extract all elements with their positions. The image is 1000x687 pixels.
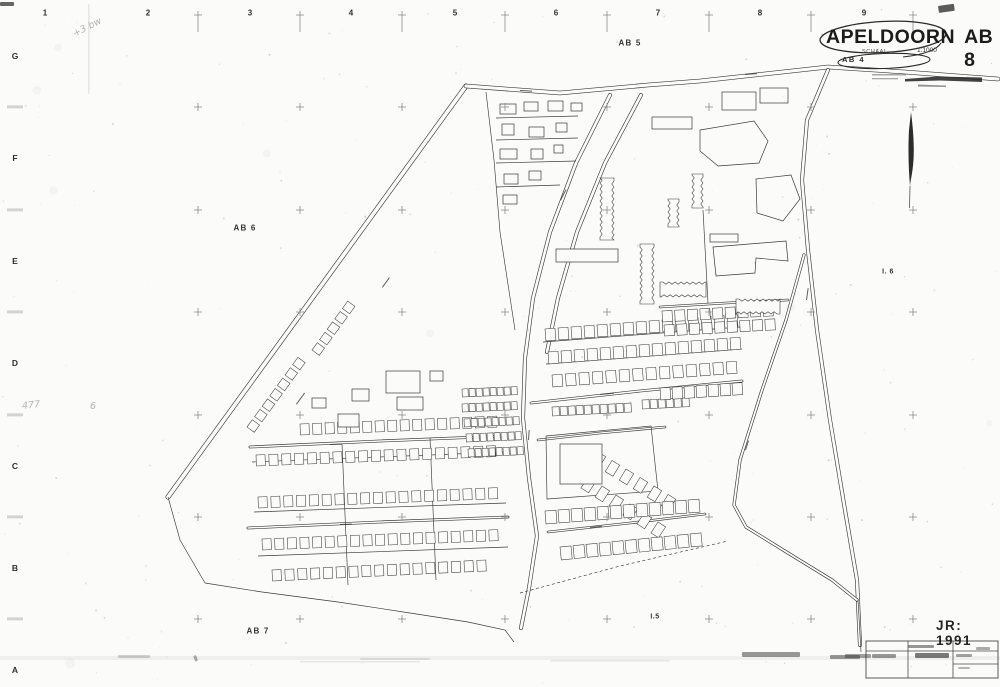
grid-column-number: 4 — [349, 9, 353, 18]
title-block: APELDOORN AB 8 — [826, 26, 1000, 72]
grid-column-number: 2 — [146, 9, 150, 18]
grid-column-number: 7 — [656, 9, 660, 18]
year-stamp: JR: 1991 — [936, 618, 1000, 648]
grid-row-letter: A — [12, 665, 18, 675]
scale-label: SCHAAL — [862, 49, 888, 55]
grid-column-number: 9 — [862, 9, 866, 18]
margin-overlay: 123456789GFEDCBAAB 5AB 6AB 7I. 6I.54776+… — [0, 0, 1000, 687]
scale-value: 1:1000 — [917, 47, 937, 54]
adjacent-sheet-ref: AB 4 — [842, 55, 865, 64]
title-sheet-code: AB 8 — [964, 26, 1000, 72]
grid-column-number: 1 — [43, 9, 47, 18]
grid-row-letter: G — [12, 51, 19, 61]
grid-row-letter: F — [12, 153, 17, 163]
grid-column-number: 5 — [453, 9, 457, 18]
grid-row-letter: E — [12, 256, 18, 266]
pencil-annotation: 6 — [90, 401, 96, 412]
adjacent-sheet-label: AB 5 — [618, 39, 641, 48]
adjacent-sheet-label: AB 6 — [233, 224, 256, 233]
pencil-annotation: +3 bw — [71, 16, 103, 40]
grid-column-number: 8 — [758, 9, 762, 18]
grid-column-number: 3 — [248, 9, 252, 18]
grid-row-letter: D — [12, 358, 18, 368]
pencil-annotation: 477 — [21, 399, 40, 412]
scanned-map-sheet: 123456789GFEDCBAAB 5AB 6AB 7I. 6I.54776+… — [0, 0, 1000, 687]
grid-column-number: 6 — [554, 9, 558, 18]
grid-row-letter: B — [12, 563, 18, 573]
title-city: APELDOORN — [826, 26, 955, 49]
grid-row-letter: C — [12, 461, 18, 471]
adjacent-sheet-label: I. 6 — [882, 269, 894, 276]
adjacent-sheet-label: AB 7 — [246, 627, 269, 636]
adjacent-sheet-label: I.5 — [650, 614, 659, 621]
